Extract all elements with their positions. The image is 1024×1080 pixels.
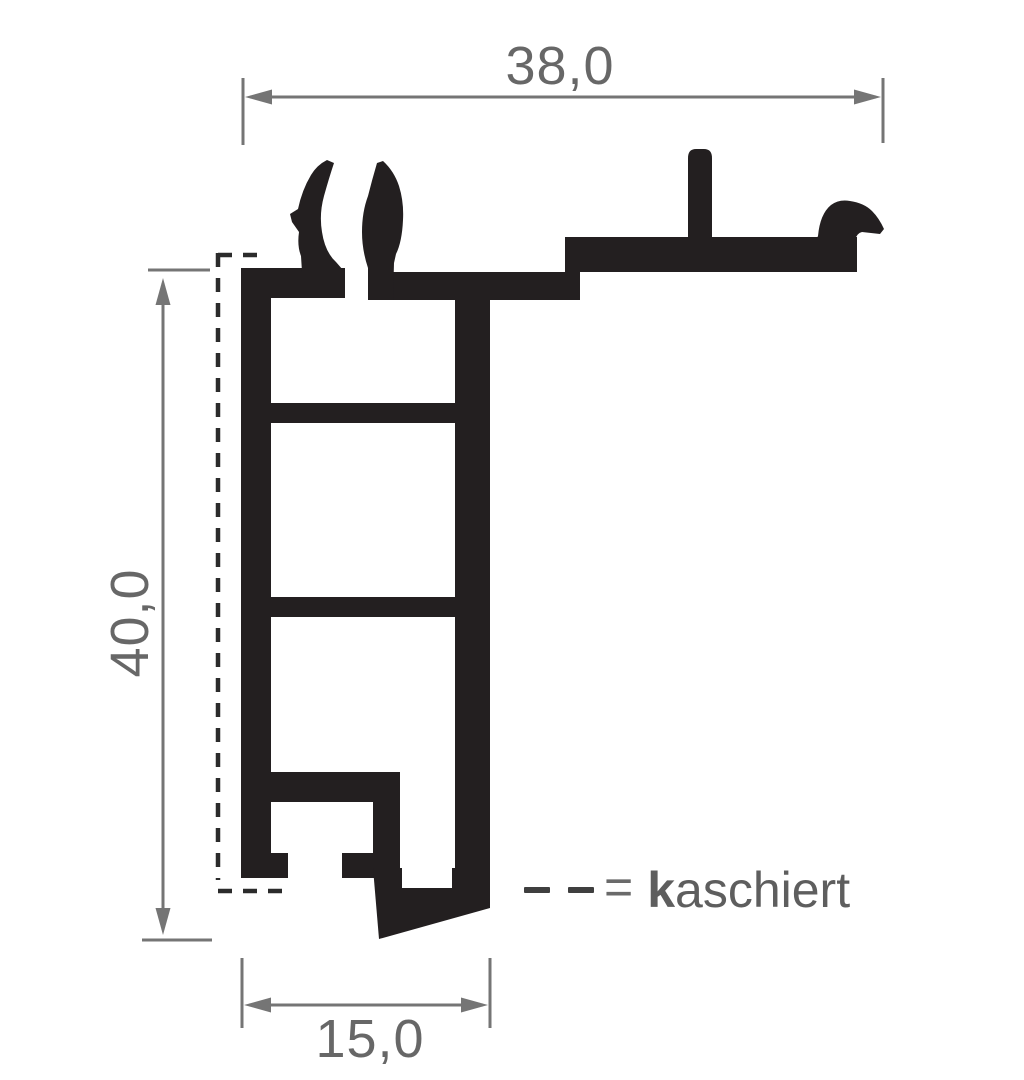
profile-cross-section: [241, 149, 884, 939]
profile-partition-upper: [271, 403, 455, 423]
legend-dash-icon: [524, 887, 550, 893]
legend-term-rest: aschiert: [675, 862, 850, 918]
profile-floor: [241, 772, 400, 802]
profile-top-bar-left: [241, 268, 345, 298]
legend-equals: =: [604, 858, 633, 916]
legend: = kaschiert: [524, 864, 850, 916]
dimension-bottom-arrow-left: [244, 998, 271, 1013]
profile-partition-lower: [271, 597, 455, 617]
legend-term: kaschiert: [647, 861, 850, 919]
dimension-bottom-label: 15,0: [315, 1008, 424, 1070]
dimension-top-arrow-right: [854, 90, 881, 105]
dimension-top-label: 38,0: [505, 35, 614, 97]
profile-bottom-step: [373, 802, 400, 878]
legend-term-bold: k: [647, 862, 675, 918]
profile-top-arm: [565, 237, 857, 272]
dimension-left-label: 40,0: [99, 568, 161, 677]
dimension-top-arrow-left: [245, 90, 272, 105]
dimension-left-arrow-bottom: [156, 908, 171, 935]
profile-pin: [688, 149, 712, 240]
profile-right-wall: [455, 272, 490, 888]
legend-dash-icon: [568, 887, 594, 893]
dimension-left-arrow-top: [156, 278, 171, 305]
technical-drawing-page: 38,0 40,0 15,0 = kaschiert: [0, 0, 1024, 1080]
dimension-bottom-arrow-right: [461, 998, 488, 1013]
profile-hook: [816, 201, 884, 241]
profile-clip-prong-left: [290, 160, 343, 272]
profile-diagram-canvas: [0, 0, 1024, 1080]
profile-foot-left: [241, 853, 288, 878]
profile-notch: [402, 850, 452, 888]
profile-foot-right: [342, 853, 373, 878]
